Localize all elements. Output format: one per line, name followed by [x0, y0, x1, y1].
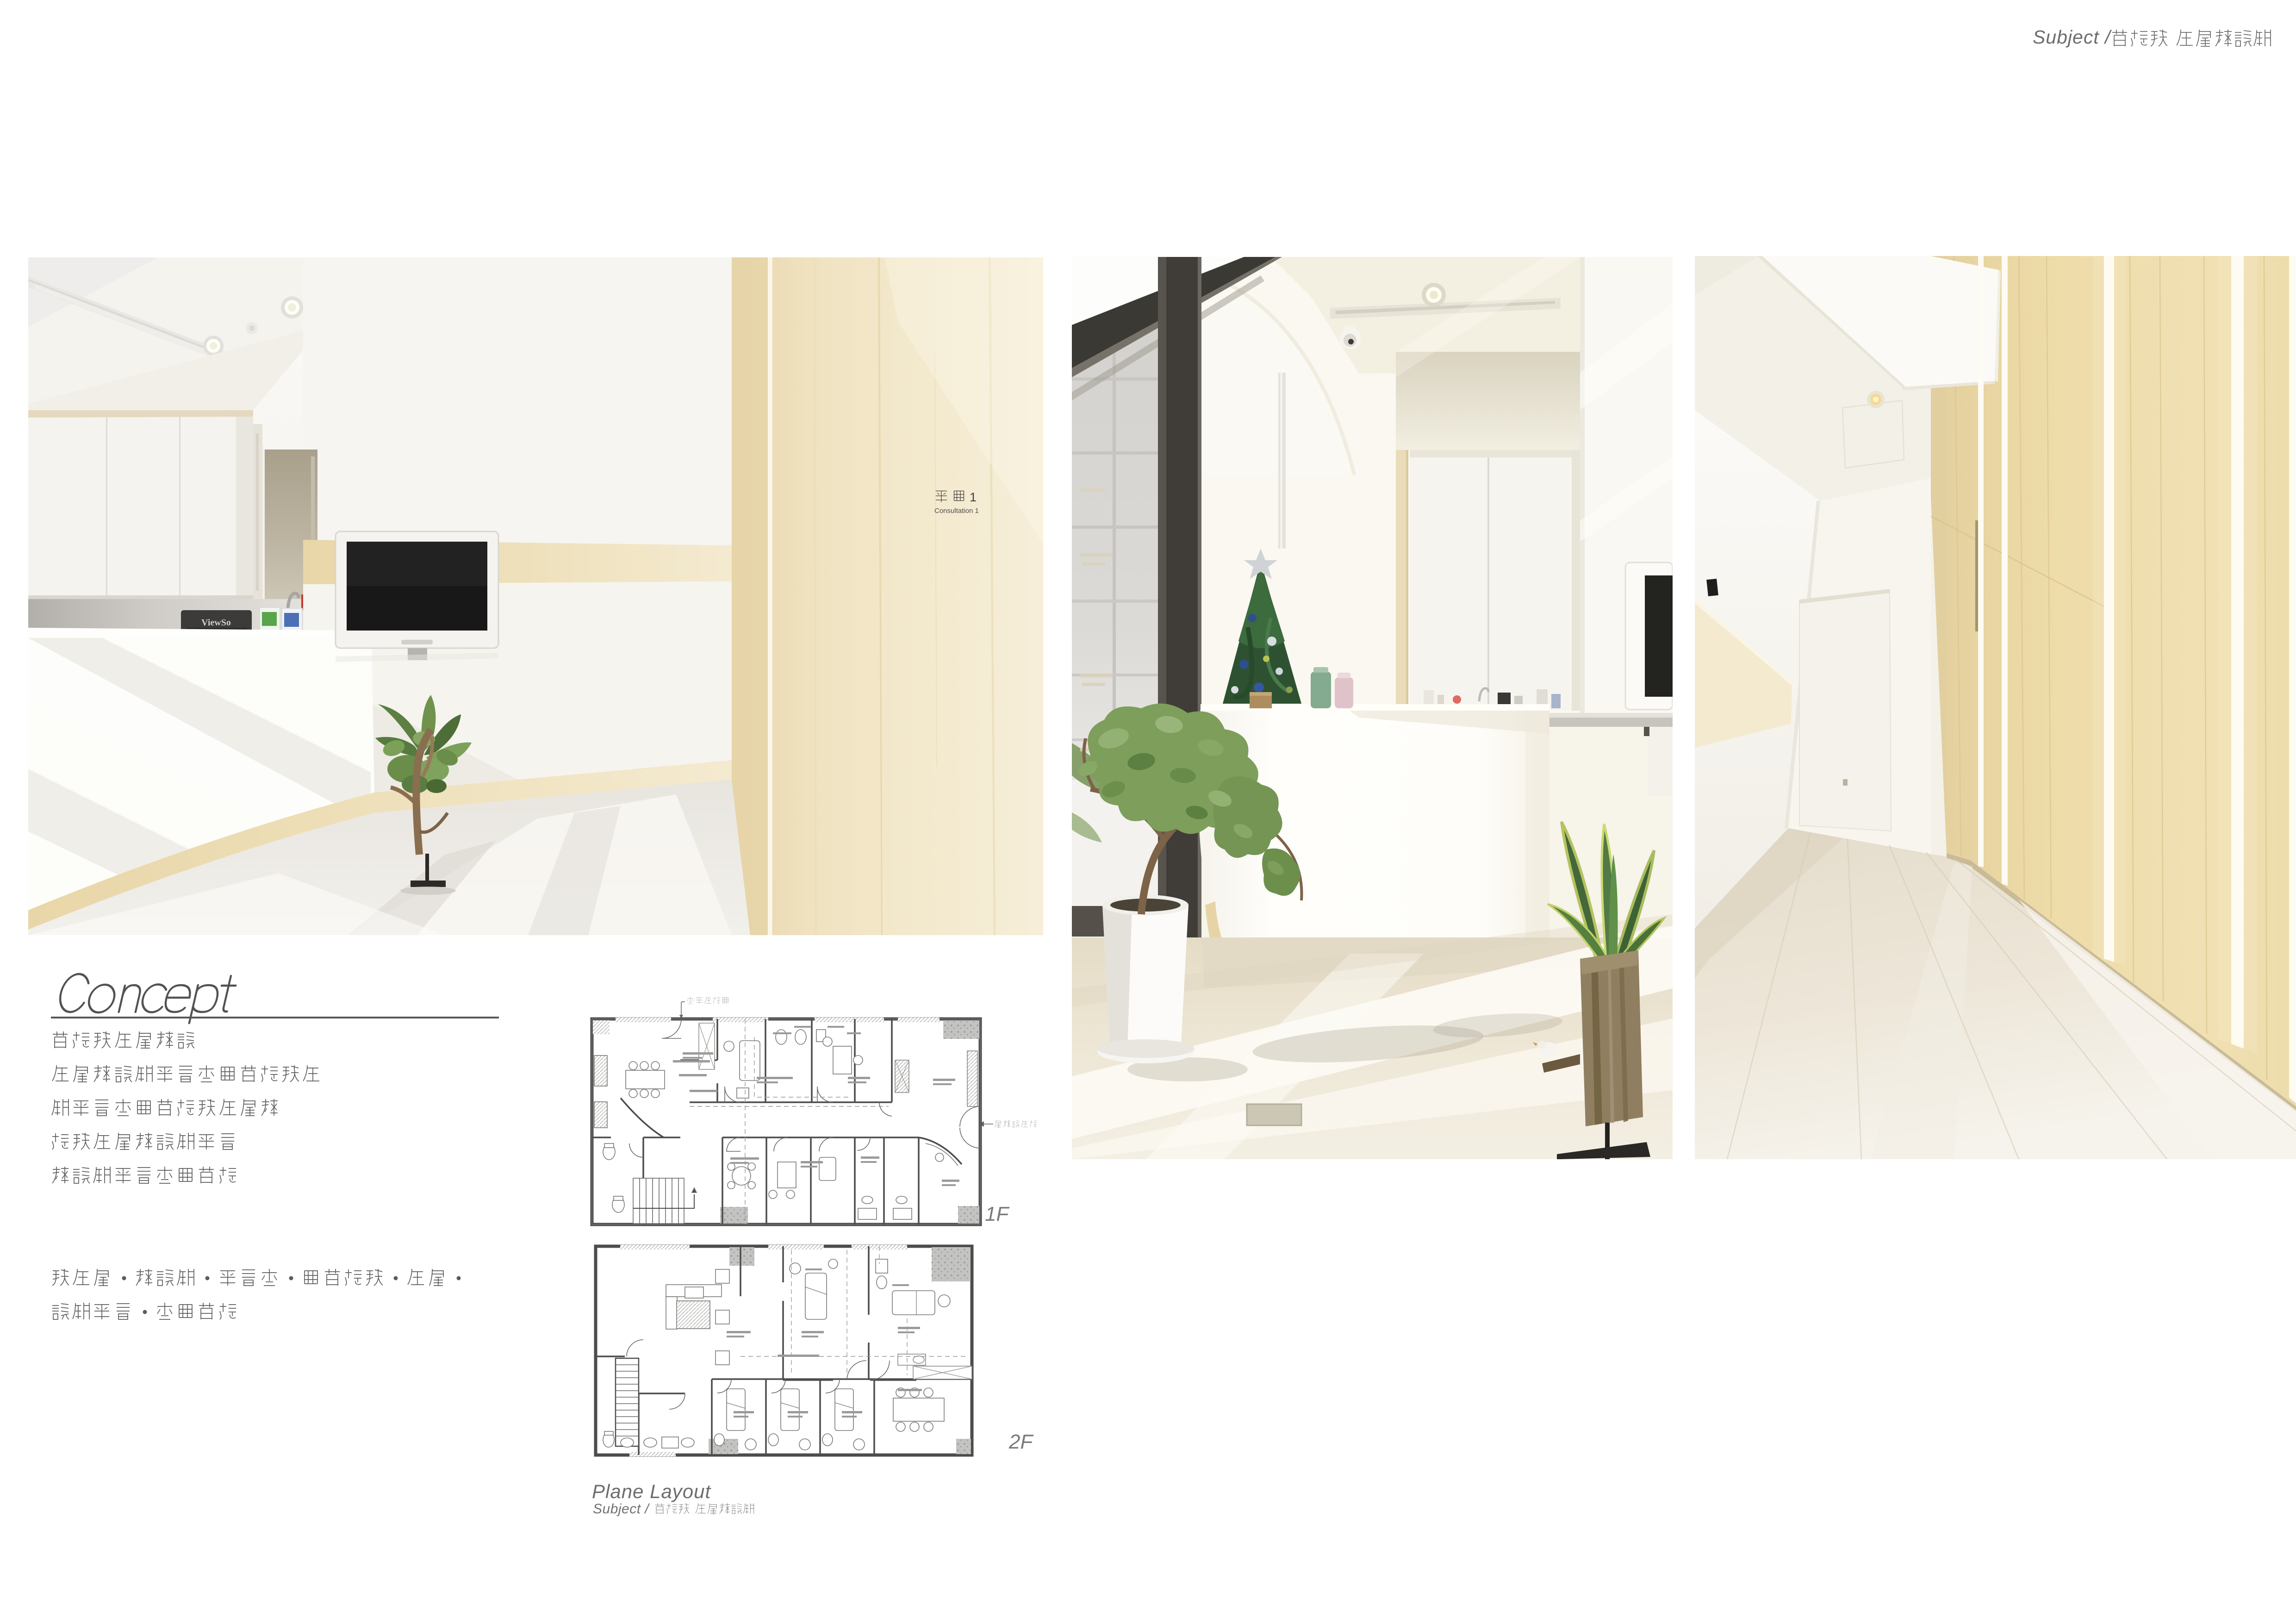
- svg-text:ViewSo: ViewSo: [201, 618, 231, 628]
- svg-text:1: 1: [970, 490, 977, 504]
- svg-text:Consultation 1: Consultation 1: [934, 507, 979, 515]
